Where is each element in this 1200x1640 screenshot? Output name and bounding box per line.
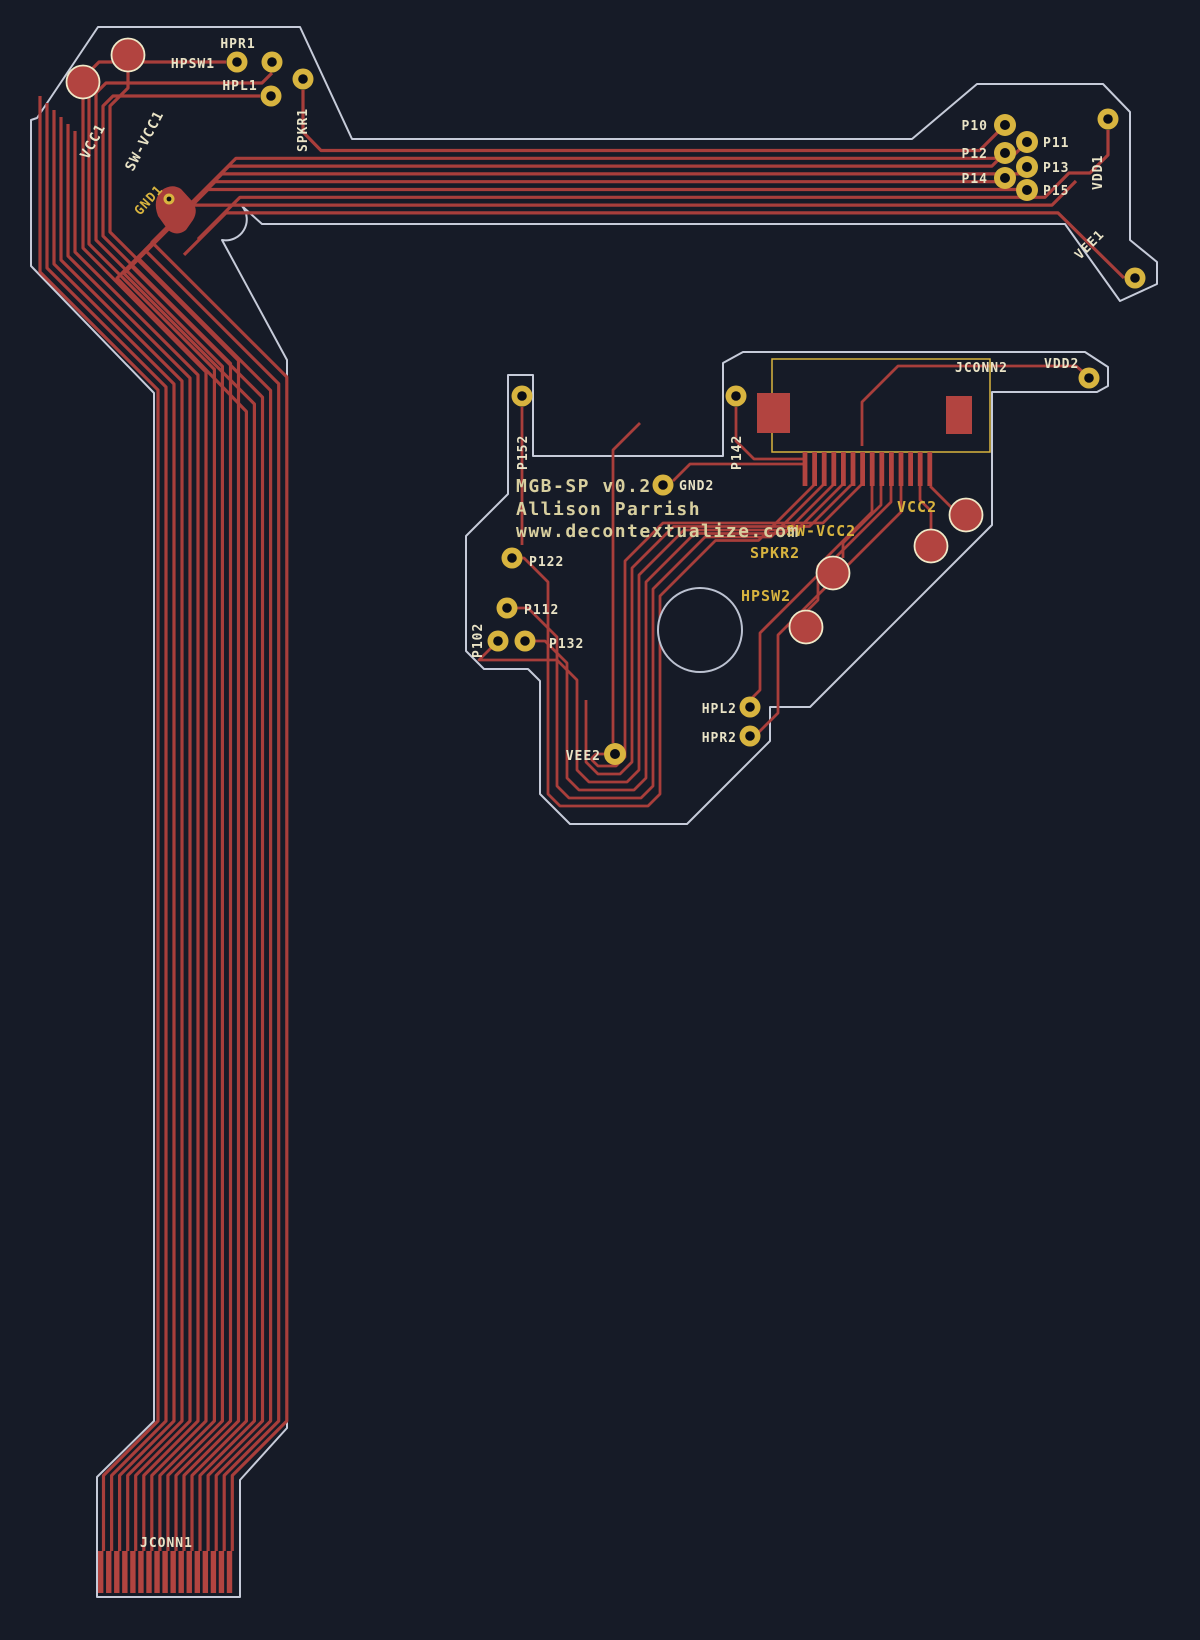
connector-finger <box>831 452 836 486</box>
pad-HPR1 <box>262 52 283 73</box>
label-P122: P122 <box>529 555 564 570</box>
pad-HPSW2 <box>790 611 823 644</box>
pad-VDD2 <box>1079 368 1100 389</box>
canvas-background <box>0 0 1200 1640</box>
connector-finger <box>899 452 904 486</box>
label-P142: P142 <box>730 435 745 470</box>
connector-finger <box>195 1551 200 1593</box>
label-HPR1: HPR1 <box>220 37 255 52</box>
pad-P14 <box>994 167 1016 189</box>
label-SPKR2: SPKR2 <box>750 544 800 562</box>
label-HPR2: HPR2 <box>702 731 737 746</box>
pcb-layout-view: HPR1HPSW1HPL1SPKR1VCC1SW-VCC1GND1P10P12P… <box>0 0 1200 1640</box>
pad-SPKR1 <box>293 69 314 90</box>
pad-P112 <box>497 598 518 619</box>
connector-finger <box>203 1551 208 1593</box>
label-VDD2: VDD2 <box>1044 357 1079 372</box>
silkscreen-text-line2: Allison Parrish <box>516 499 701 520</box>
connector-finger <box>130 1551 135 1593</box>
connector-finger <box>179 1551 184 1593</box>
connector-finger <box>889 452 894 486</box>
jconn2-mount-pad-right <box>946 396 972 434</box>
pad-SPKR2 <box>817 557 850 590</box>
label-SPKR1: SPKR1 <box>296 108 311 152</box>
pad-VEE1 <box>1125 268 1146 289</box>
label-VEE2: VEE2 <box>566 749 601 764</box>
pad-P132 <box>515 631 536 652</box>
pad-P13 <box>1016 156 1038 178</box>
connector-finger <box>227 1551 232 1593</box>
connector-finger <box>803 452 808 486</box>
pad-VDD1 <box>1098 109 1119 130</box>
connector-finger <box>851 452 856 486</box>
pad-P142 <box>726 386 747 407</box>
pad-P10 <box>994 114 1016 136</box>
connector-finger <box>187 1551 192 1593</box>
label-HPSW2: HPSW2 <box>741 587 791 605</box>
pad-P11 <box>1016 131 1038 153</box>
connector-finger <box>146 1551 151 1593</box>
connector-finger <box>812 452 817 486</box>
connector-finger <box>219 1551 224 1593</box>
pad-P12 <box>994 142 1016 164</box>
connector-finger <box>927 452 932 486</box>
label-P10: P10 <box>962 119 988 134</box>
connector-finger <box>98 1551 103 1593</box>
label-JCONN2: JCONN2 <box>955 361 1008 376</box>
label-HPL2: HPL2 <box>702 702 737 717</box>
connector-finger <box>822 452 827 486</box>
label-JCONN1: JCONN1 <box>140 1536 193 1551</box>
label-VCC2: VCC2 <box>897 498 937 516</box>
connector-finger <box>138 1551 143 1593</box>
label-P12: P12 <box>962 147 988 162</box>
connector-finger <box>170 1551 175 1593</box>
pad-HPSW1 <box>227 52 248 73</box>
pad-VEE2 <box>604 743 626 765</box>
connector-finger <box>106 1551 111 1593</box>
jconn2-mount-pad-left <box>757 393 790 433</box>
label-P132: P132 <box>549 637 584 652</box>
pad-HPR2 <box>740 726 761 747</box>
label-HPSW1: HPSW1 <box>171 57 215 72</box>
connector-finger <box>918 452 923 486</box>
mounting-hole <box>658 588 742 672</box>
pad-VCC1 <box>67 66 100 99</box>
pcb-layout-canvas: HPR1HPSW1HPL1SPKR1VCC1SW-VCC1GND1P10P12P… <box>0 0 1200 1640</box>
silkscreen-text-line3: www.decontextualize.com <box>516 521 800 542</box>
label-P102: P102 <box>471 623 486 658</box>
silkscreen-text-line1: MGB-SP v0.2 <box>516 476 652 497</box>
label-P152: P152 <box>516 435 531 470</box>
pad-GND1 <box>164 194 175 205</box>
jconn1-fingers <box>98 1551 232 1593</box>
connector-finger <box>908 452 913 486</box>
connector-finger <box>162 1551 167 1593</box>
label-P11: P11 <box>1043 136 1069 151</box>
label-GND2: GND2 <box>679 479 714 494</box>
pad-P102 <box>488 631 509 652</box>
connector-finger <box>870 452 875 486</box>
pad-GND2 <box>653 475 674 496</box>
label-P15: P15 <box>1043 184 1069 199</box>
pad-HPL1 <box>261 86 282 107</box>
label-P14: P14 <box>962 172 988 187</box>
connector-finger <box>841 452 846 486</box>
pad-SW-VCC2 <box>915 530 948 563</box>
pad-VCC2 <box>950 499 983 532</box>
connector-finger <box>114 1551 119 1593</box>
pad-P152 <box>512 386 533 407</box>
pad-HPL2 <box>740 697 761 718</box>
connector-finger <box>879 452 884 486</box>
label-HPL1: HPL1 <box>222 79 257 94</box>
label-P13: P13 <box>1043 161 1069 176</box>
connector-finger <box>154 1551 159 1593</box>
label-P112: P112 <box>524 603 559 618</box>
pad-P15 <box>1016 179 1038 201</box>
pad-P122 <box>502 548 523 569</box>
pad-SW-VCC1 <box>112 39 145 72</box>
connector-finger <box>122 1551 127 1593</box>
label-VDD1: VDD1 <box>1091 155 1106 190</box>
connector-finger <box>211 1551 216 1593</box>
connector-finger <box>860 452 865 486</box>
